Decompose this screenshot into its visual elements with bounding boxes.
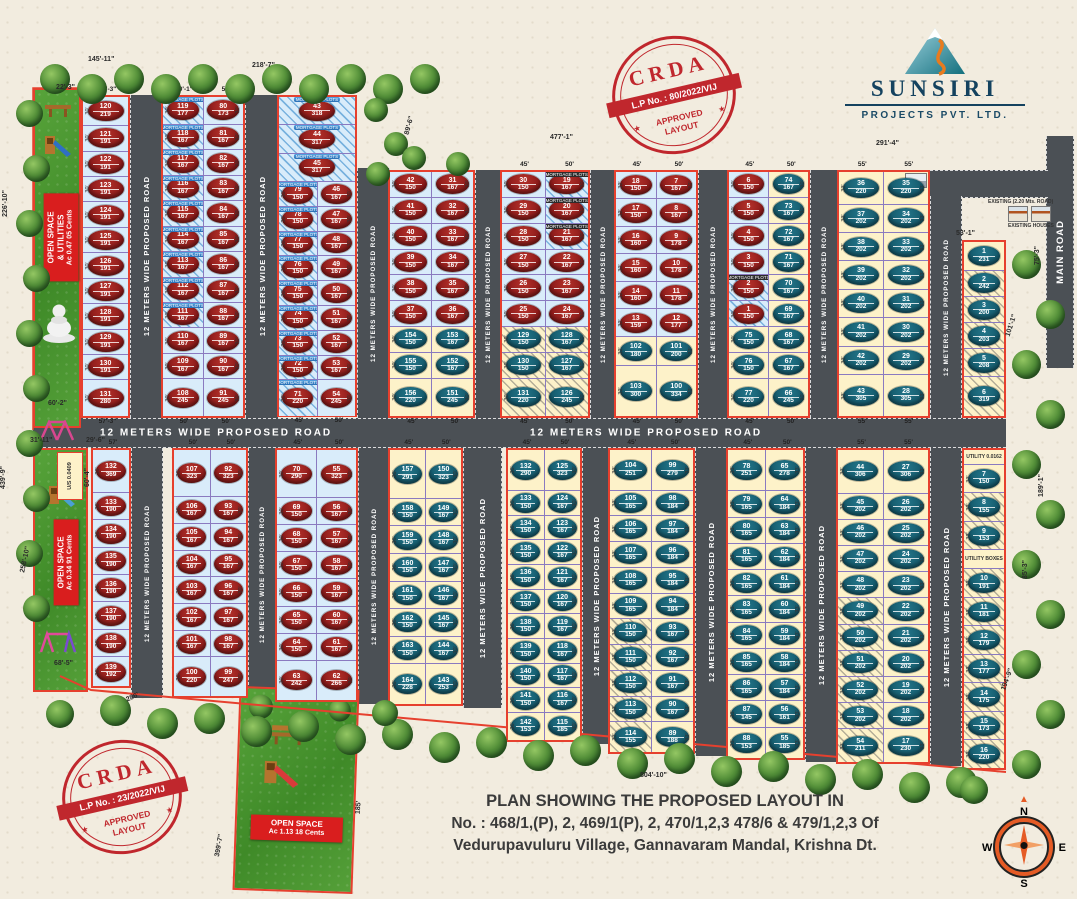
plot-area: 177 xyxy=(665,322,687,330)
mortgage-band-U3: MORTGAGE PLOTS43318MORTGAGE PLOTS44317MO… xyxy=(279,97,355,182)
plot-area: 167 xyxy=(172,340,194,348)
plot-dimension: 33' xyxy=(795,462,801,478)
plot-number: 118 xyxy=(167,130,199,137)
plot-oval: 43305 xyxy=(843,386,879,406)
plot-U4-152: 15216730' xyxy=(432,352,473,378)
plot-number: 26 xyxy=(888,499,924,506)
plot-number: 51 xyxy=(842,656,878,663)
plot-L7-80: 8016533' xyxy=(728,517,765,543)
block-column: 9232330'9316730'9416730'9516730'9616730'… xyxy=(210,450,247,696)
plot-number: 15 xyxy=(968,718,1001,725)
plot-U7-76: 7615030' xyxy=(729,352,768,378)
plot-U8-38: 3820233' xyxy=(839,232,883,260)
plot-number: 131 xyxy=(88,391,124,398)
plot-dimension: 33' xyxy=(841,295,847,311)
plot-oval: 18150 xyxy=(620,175,652,195)
plot-oval: 131280 xyxy=(88,388,124,408)
plot-area: 202 xyxy=(847,689,873,697)
plot-area: 155 xyxy=(973,507,996,515)
plot-U7-5: 515030' xyxy=(729,197,768,223)
block-width-dimension: 50' xyxy=(565,161,574,168)
plan-title-line2: No. : 468/1,(P), 2, 469/1(P), 2, 470/1,2… xyxy=(380,815,950,833)
plot-dimension: 30' xyxy=(572,667,578,683)
block-column: 15032330'14916730'14816730'14716730'1461… xyxy=(425,450,461,704)
block-column: 4430633'4520233'4620233'4720233'4820233'… xyxy=(838,450,883,762)
plot-L5-125: 12532330' xyxy=(545,450,581,490)
plot-dimension: 30' xyxy=(504,176,510,192)
plot-dimension: 32' xyxy=(688,383,694,399)
plot-dimension: 30' xyxy=(238,465,244,481)
block-width-dimension: 50' xyxy=(561,439,570,446)
plot-dimension: 30' xyxy=(348,466,354,482)
plot-U2-88: 8816730' xyxy=(204,302,244,327)
plot-dimension: 30' xyxy=(572,593,578,609)
plot-dimension: 30' xyxy=(95,608,101,624)
block-width-dimension: 50' xyxy=(675,161,684,168)
plot-dimension: 30' xyxy=(800,389,806,405)
plot-number: 123 xyxy=(88,182,124,189)
plot-L5-121: 12116730' xyxy=(545,564,581,589)
plot-dimension: 30' xyxy=(348,612,354,628)
plot-area: 150 xyxy=(511,365,536,373)
plot-dimension: 30' xyxy=(572,520,578,536)
plot-area: 167 xyxy=(665,185,687,193)
block-columns: 10732330'10616730'10516730'10416730'1031… xyxy=(174,450,246,696)
road-label: 12 METERS WIDE PROPOSED ROAD xyxy=(371,508,378,645)
picnic-table-icon xyxy=(43,102,73,118)
plot-dimension: 30' xyxy=(504,357,510,373)
block-column: 7825133'7916533'8016533'8116533'8216533'… xyxy=(728,450,765,758)
plot-L5-118: 11816730' xyxy=(545,638,581,663)
tree-icon xyxy=(23,155,50,182)
block-column: 13236930'13319030'13419030'13519030'1361… xyxy=(93,450,129,686)
plot-dimension: 30' xyxy=(392,504,398,520)
plot-dimension: 30' xyxy=(95,498,101,514)
plot-dimension: 33' xyxy=(966,632,972,648)
plot-dimension: 30' xyxy=(176,529,182,545)
plot-oval: 6319 xyxy=(968,386,1001,406)
plot-area: 220 xyxy=(973,754,996,762)
plot-number: 121 xyxy=(88,131,124,138)
plot-number: 129 xyxy=(88,334,124,341)
plot-dimension: 30' xyxy=(238,636,244,652)
block-width-dimension: 50' xyxy=(442,439,451,446)
plot-oval: 47202 xyxy=(842,549,878,569)
plot-U6-16: 1616032' xyxy=(616,226,656,253)
plot-dimension: 33' xyxy=(966,471,972,487)
compass-west: W xyxy=(982,842,992,854)
plot-dimension: 33' xyxy=(920,738,926,754)
plot-U3-71: MORTGAGE PLOTS7122030' xyxy=(279,379,317,416)
block-width-dimension: 55' xyxy=(857,439,866,446)
open-space-utilities-label: OPEN SPACE & UTILITIES Ac 0.47 05 Cents xyxy=(44,193,79,281)
block-columns: UTILITY 0.0162715033'815533'915333'UTILI… xyxy=(964,450,1004,768)
plot-area: 167 xyxy=(326,342,347,350)
plot-area: 184 xyxy=(774,504,794,512)
plot-U5-26: 2615030' xyxy=(502,274,545,300)
plot-dimension: 33' xyxy=(920,708,926,724)
plot-dimension: 32' xyxy=(618,315,624,331)
plot-area: 165 xyxy=(619,580,643,588)
plot-oval: 16160 xyxy=(620,230,652,250)
plot-dimension: 32' xyxy=(688,260,694,276)
plot-oval: 20202 xyxy=(888,653,924,673)
plot-block-L2: 10732330'10616730'10516730'10416730'1031… xyxy=(172,448,248,698)
plot-L1-137: 13719030' xyxy=(93,601,129,628)
tree-icon xyxy=(429,732,460,763)
plot-L2-102: 10216730' xyxy=(174,603,210,630)
plot-area: 202 xyxy=(848,360,874,368)
plot-number: 24 xyxy=(549,306,584,313)
plot-dimension: 33' xyxy=(685,495,691,511)
plot-number: 46 xyxy=(842,525,878,532)
plot-oval: 22167 xyxy=(549,252,584,272)
plot-dimension: 33' xyxy=(685,546,691,562)
plot-L7-60: 6018433' xyxy=(766,595,803,621)
plot-oval: 17230 xyxy=(888,736,924,756)
plot-dimension: 33' xyxy=(795,575,801,591)
plot-dimension: 30' xyxy=(348,503,354,519)
block-columns: 123122423200420352086319 xyxy=(964,242,1004,416)
plot-L3-57: 5716730' xyxy=(317,524,356,551)
plot-dimension: 30' xyxy=(85,130,91,146)
plot-area: 150 xyxy=(398,650,417,658)
block-column: 2730633'2620233'2520233'2420233'2320233'… xyxy=(883,450,929,762)
plot-area: 150 xyxy=(738,262,760,270)
plot-dimension: 33' xyxy=(685,624,691,640)
utility-parcel: UTILITY 0.0162 xyxy=(964,450,1004,464)
plot-L3-67: 6715030' xyxy=(277,551,316,578)
existing-road-label: EXISTING (2.20 Mts. ROAD) xyxy=(988,199,1053,205)
tree-icon xyxy=(336,64,366,94)
plot-number: 22 xyxy=(888,603,924,610)
plot-number: 30 xyxy=(506,177,541,184)
plot-L5-142: 14215330' xyxy=(508,712,544,740)
plot-number: 130 xyxy=(88,360,124,367)
plot-U2-83: 8316730' xyxy=(204,175,244,200)
plot-area: 167 xyxy=(441,313,465,321)
plot-dimension: 30' xyxy=(392,331,398,347)
plot-dimension: 30' xyxy=(235,180,241,196)
plot-U5-28: 2815030' xyxy=(502,223,545,249)
block-column: 7029030'6915030'6815030'6715030'6615030'… xyxy=(277,450,316,700)
proposed-road-vertical-15: 12 METERS WIDE PROPOSED ROAD xyxy=(805,448,838,762)
tree-icon xyxy=(151,74,181,104)
plot-area: 167 xyxy=(172,290,194,298)
plot-number: 40 xyxy=(843,296,879,303)
plot-oval: 26202 xyxy=(888,496,924,516)
plot-L5-117: 11716730' xyxy=(545,663,581,688)
plot-area: 150 xyxy=(398,512,417,520)
plot-L6-93: 9316733' xyxy=(652,618,693,644)
plot-block-U7: 615030'515030'415030'315030'MORTGAGE PLO… xyxy=(727,170,810,418)
plot-number: 107 xyxy=(614,547,648,554)
plot-L4-148: 14816730' xyxy=(426,525,461,553)
road-label: 12 METERS WIDE PROPOSED ROAD xyxy=(592,516,601,676)
tree-icon xyxy=(225,74,255,104)
plot-dimension: 30' xyxy=(238,529,244,545)
plot-oval: 49202 xyxy=(842,601,878,621)
plot-number: 25 xyxy=(506,306,541,313)
proposed-road-vertical-5: 12 METERS WIDE PROPOSED ROAD xyxy=(590,170,616,418)
plot-dimension: 30' xyxy=(465,202,471,218)
plot-L6-97: 9718433' xyxy=(652,515,693,541)
plot-area: 202 xyxy=(847,558,873,566)
block-width-dimension: 50' xyxy=(671,439,680,446)
plot-area: 150 xyxy=(398,622,417,630)
plot-area: 165 xyxy=(619,528,643,536)
plot-dimension: 30' xyxy=(800,228,806,244)
plot-oval: 112150 xyxy=(614,673,648,693)
plot-oval: 14175 xyxy=(968,687,1001,707)
plot-oval: 41150 xyxy=(394,200,428,220)
plot-U6-103: 10330032' xyxy=(616,365,656,416)
plot-number: 77 xyxy=(733,390,765,397)
plot-number: 104 xyxy=(614,462,648,469)
plot-oval: 9153 xyxy=(968,526,1001,546)
mortgage-plots-tag: MORTGAGE PLOTS xyxy=(729,275,768,280)
plot-dimension: 33' xyxy=(730,575,736,591)
plot-dimension: 32' xyxy=(618,287,624,303)
plot-number: 23 xyxy=(888,577,924,584)
plot-U2-118: MORTGAGE PLOTS11816730' xyxy=(163,124,203,149)
block-width-dimension: 50' xyxy=(222,418,231,425)
plot-U4-33: 3316730' xyxy=(432,223,473,249)
dimension-label: 31'-11" xyxy=(30,437,53,444)
plot-area: 167 xyxy=(212,188,234,196)
plot-L5-122: 12216730' xyxy=(545,539,581,564)
plot-area: 190 xyxy=(101,643,121,651)
plot-area: 167 xyxy=(661,683,685,691)
plot-area: 184 xyxy=(774,556,794,564)
plot-area: 167 xyxy=(326,511,348,519)
plot-U3-47: 4716730' xyxy=(318,206,356,231)
plot-area: 150 xyxy=(738,210,760,218)
plot-area: 279 xyxy=(661,470,685,478)
mortgage-plots-tag: MORTGAGE PLOTS xyxy=(279,281,317,286)
north-arrow-icon: ▲ xyxy=(1019,794,1029,805)
block-width-dimension: 45' xyxy=(745,161,754,168)
plot-oval: 41202 xyxy=(843,322,879,342)
plot-U4-35: 3516730' xyxy=(432,274,473,300)
plot-dimension: 30' xyxy=(85,181,91,197)
plot-L5-115: 11518530' xyxy=(545,712,581,740)
plot-dimension: 30' xyxy=(279,557,285,573)
plot-oval: 128191 xyxy=(88,306,124,326)
plot-number: 126 xyxy=(549,390,584,397)
plot-number: 16 xyxy=(620,233,652,240)
plot-L3-55: 5532330' xyxy=(317,450,356,497)
plot-area: 253 xyxy=(434,684,453,692)
plot-dimension: 30' xyxy=(510,495,516,511)
plot-dimension: 30' xyxy=(392,202,398,218)
proposed-road-vertical-4: 12 METERS WIDE PROPOSED ROAD xyxy=(475,170,502,418)
plot-area: 202 xyxy=(848,246,874,254)
plot-area: 167 xyxy=(326,293,347,301)
plot-oval: 2242 xyxy=(968,273,1001,293)
open-space-area: Ac 0.34 91 Cents xyxy=(67,523,76,601)
plot-oval: 4203 xyxy=(968,326,1001,346)
plot-number: 48 xyxy=(842,577,878,584)
plot-number: 49 xyxy=(842,603,878,610)
plot-area: 165 xyxy=(619,503,643,511)
block-columns: 4430633'4520233'4620233'4720233'4820233'… xyxy=(838,450,928,762)
plot-oval: 35220 xyxy=(888,178,924,198)
plot-area: 167 xyxy=(665,212,687,220)
plot-number: 115 xyxy=(167,206,199,213)
plot-area: 167 xyxy=(553,651,572,659)
plot-dimension: 30' xyxy=(279,639,285,655)
plot-dimension: 33' xyxy=(730,680,736,696)
block-width-dimension: 45' xyxy=(295,417,304,424)
plot-dimension: 30' xyxy=(279,584,285,600)
plot-L5-133: 13315030' xyxy=(508,490,544,515)
plot-oval: 125191 xyxy=(88,230,124,250)
plot-area: 208 xyxy=(973,362,996,370)
plot-number: 111 xyxy=(167,308,199,315)
plot-U7-6: 615030' xyxy=(729,172,768,197)
plot-oval: 110150 xyxy=(614,622,648,642)
plot-oval: 75150 xyxy=(733,329,765,349)
plot-U7-2: MORTGAGE PLOTS215030' xyxy=(729,274,768,300)
plot-dimension: 33' xyxy=(920,463,926,479)
plot-area: 245 xyxy=(441,397,465,405)
plot-oval: 129150 xyxy=(506,329,541,349)
open-space-area: Ac 0.47 05 Cents xyxy=(67,197,76,277)
plot-oval: 67150 xyxy=(281,555,313,575)
plot-number: 76 xyxy=(733,358,765,365)
plot-area: 202 xyxy=(893,303,919,311)
plot-U7-73: 7316730' xyxy=(769,197,808,223)
plot-oval: 48202 xyxy=(842,575,878,595)
plot-U8-40: 4020233' xyxy=(839,289,883,317)
plot-dimension: 33' xyxy=(920,629,926,645)
plot-L6-95: 9518433' xyxy=(652,567,693,593)
plot-oval: 124191 xyxy=(88,205,124,225)
plot-area: 150 xyxy=(738,339,760,347)
plot-oval: 2150 xyxy=(733,278,765,298)
plot-number: 29 xyxy=(888,353,924,360)
dimension-label: 439'-9" xyxy=(0,466,7,489)
plot-L7-88: 8815333' xyxy=(728,727,765,758)
plot-dimension: 30' xyxy=(392,676,398,692)
plot-area: 167 xyxy=(778,236,800,244)
plot-U1-129: 12919130' xyxy=(83,329,128,354)
plot-area: 192 xyxy=(101,671,121,679)
plot-dimension: 33' xyxy=(840,551,846,567)
proposed-road-vertical-6: 12 METERS WIDE PROPOSED ROAD xyxy=(698,170,729,418)
tree-icon xyxy=(46,700,74,728)
plot-U5-24: 2416730' xyxy=(546,300,589,326)
plot-dimension: 30' xyxy=(453,504,459,520)
plot-area: 150 xyxy=(399,184,423,192)
plot-dimension: 30' xyxy=(85,334,91,350)
plot-L8-49: 4920233' xyxy=(838,597,883,623)
plot-RT-4: 4203 xyxy=(964,322,1004,348)
plot-area: 290 xyxy=(286,473,308,481)
plot-dimension: 30' xyxy=(85,258,91,274)
plot-oval: 45317 xyxy=(299,157,335,177)
plot-oval: 21167 xyxy=(549,226,584,246)
mortgage-plots-tag: MORTGAGE PLOTS xyxy=(163,252,203,257)
plot-L4-143: 14325330' xyxy=(426,663,461,704)
plot-dimension: 33' xyxy=(612,521,618,537)
plot-oval: 77220 xyxy=(733,387,765,407)
plot-dimension: 30' xyxy=(95,526,101,542)
plot-number: 127 xyxy=(549,358,584,365)
plot-oval: 45202 xyxy=(842,496,878,516)
plot-dimension: 33' xyxy=(920,295,926,311)
plot-dimension: 30' xyxy=(580,202,586,218)
plot-dimension: 33' xyxy=(920,603,926,619)
plot-U4-42: 4215030' xyxy=(390,172,431,197)
plot-number: 130 xyxy=(506,358,541,365)
plot-dimension: 30' xyxy=(165,282,171,298)
road-label: 12 METERS WIDE PROPOSED ROAD xyxy=(258,176,267,336)
block-width-dimension: 57' xyxy=(109,439,118,446)
logo-name: SUNSIRI xyxy=(845,76,1025,106)
plan-title-line1: PLAN SHOWING THE PROPOSED LAYOUT IN xyxy=(380,792,950,811)
plot-dimension: 33' xyxy=(920,682,926,698)
plot-U8-32: 3220233' xyxy=(884,260,928,288)
plot-number: 54 xyxy=(842,738,878,745)
plot-number: 5 xyxy=(733,203,765,210)
block-column: 3522033'3420233'3320233'3220233'3120233'… xyxy=(883,172,928,416)
plot-oval: 18202 xyxy=(888,706,924,726)
plot-number: 3 xyxy=(968,302,1001,309)
plot-number: 42 xyxy=(394,177,428,184)
plot-number: 43 xyxy=(299,103,335,110)
dimension-label: 60'-4" xyxy=(84,468,91,487)
plot-dimension: 30' xyxy=(504,254,510,270)
plot-oval: 23202 xyxy=(888,575,924,595)
plot-area: 167 xyxy=(219,510,238,518)
mortgage-plots-tag: MORTGAGE PLOTS xyxy=(163,278,203,283)
plot-L2-92: 9232330' xyxy=(211,450,247,496)
plot-area: 167 xyxy=(661,657,685,665)
plot-L7-64: 6418433' xyxy=(766,490,803,516)
plot-U4-151: 15124530' xyxy=(432,378,473,416)
plot-U2-85: 8516730' xyxy=(204,226,244,251)
plot-area: 167 xyxy=(212,162,234,170)
plot-oval: 69150 xyxy=(281,501,313,521)
plot-L8-26: 2620233' xyxy=(884,493,929,519)
dimension-label: 189'-1" xyxy=(1038,474,1045,497)
tree-icon xyxy=(366,162,390,186)
plot-area: 202 xyxy=(893,275,919,283)
block-column: 7416730'7316730'7216730'7116730'7016730'… xyxy=(768,172,808,416)
plot-dimension: 30' xyxy=(235,333,241,349)
plot-U4-32: 3216730' xyxy=(432,197,473,223)
plot-oval: 114155 xyxy=(614,727,648,747)
block-width-dimension: 50' xyxy=(335,439,344,446)
plot-area: 167 xyxy=(219,563,238,571)
plot-oval: 27306 xyxy=(888,461,924,481)
block-column: 615030'515030'415030'315030'MORTGAGE PLO… xyxy=(729,172,768,416)
plot-RT-3: 3200 xyxy=(964,296,1004,322)
plot-oval: 51202 xyxy=(842,653,878,673)
plot-block-U8: 3622033'3720233'3820233'3920233'4020233'… xyxy=(837,170,930,418)
plot-area: 167 xyxy=(182,643,201,651)
plot-number: 19 xyxy=(888,682,924,689)
plot-U1-130: 13019130' xyxy=(83,354,128,379)
plot-U1-131: 13128030' xyxy=(83,379,128,415)
plot-dimension: 30' xyxy=(165,256,171,272)
tree-icon xyxy=(476,727,507,758)
plot-area: 242 xyxy=(286,680,308,688)
plot-number: 16 xyxy=(968,747,1001,754)
plot-oval: 76150 xyxy=(733,355,765,375)
